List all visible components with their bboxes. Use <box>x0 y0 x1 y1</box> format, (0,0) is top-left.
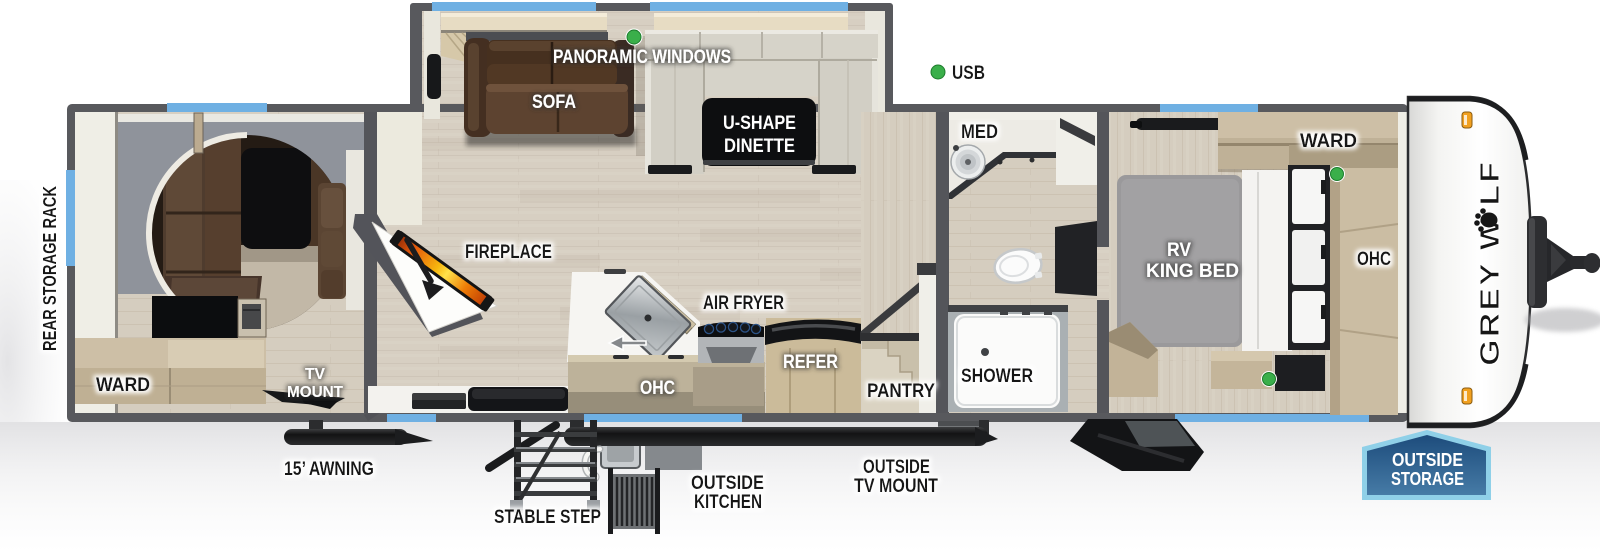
svg-text:OHC: OHC <box>640 377 675 399</box>
svg-text:GREY W LF: GREY W LF <box>1474 160 1505 366</box>
svg-text:USB: USB <box>952 62 985 84</box>
svg-text:OUTSIDE: OUTSIDE <box>1392 449 1463 470</box>
svg-text:SHOWER: SHOWER <box>961 365 1033 387</box>
svg-text:TV MOUNT: TV MOUNT <box>854 475 938 497</box>
svg-text:15’ AWNING: 15’ AWNING <box>284 458 374 480</box>
svg-text:KING BED: KING BED <box>1146 260 1239 282</box>
svg-text:REFER: REFER <box>783 351 838 373</box>
svg-text:TV: TV <box>305 366 326 383</box>
svg-text:MOUNT: MOUNT <box>287 384 344 401</box>
svg-text:REAR STORAGE RACK: REAR STORAGE RACK <box>40 186 60 351</box>
svg-text:PANTRY: PANTRY <box>867 380 935 402</box>
svg-text:KITCHEN: KITCHEN <box>694 491 762 513</box>
svg-text:PANORAMIC WINDOWS: PANORAMIC WINDOWS <box>553 46 731 68</box>
svg-text:AIR FRYER: AIR FRYER <box>703 292 784 314</box>
svg-text:WARD: WARD <box>96 374 150 396</box>
svg-text:STABLE STEP: STABLE STEP <box>494 506 601 528</box>
svg-text:DINETTE: DINETTE <box>724 135 795 157</box>
svg-text:STORAGE: STORAGE <box>1391 468 1464 489</box>
svg-text:MED: MED <box>961 121 998 143</box>
svg-text:WARD: WARD <box>1300 130 1357 152</box>
svg-text:OHC: OHC <box>1357 248 1391 270</box>
svg-text:SOFA: SOFA <box>532 91 576 113</box>
svg-text:U-SHAPE: U-SHAPE <box>723 112 796 134</box>
svg-text:FIREPLACE: FIREPLACE <box>465 241 552 263</box>
svg-text:RV: RV <box>1167 239 1191 261</box>
